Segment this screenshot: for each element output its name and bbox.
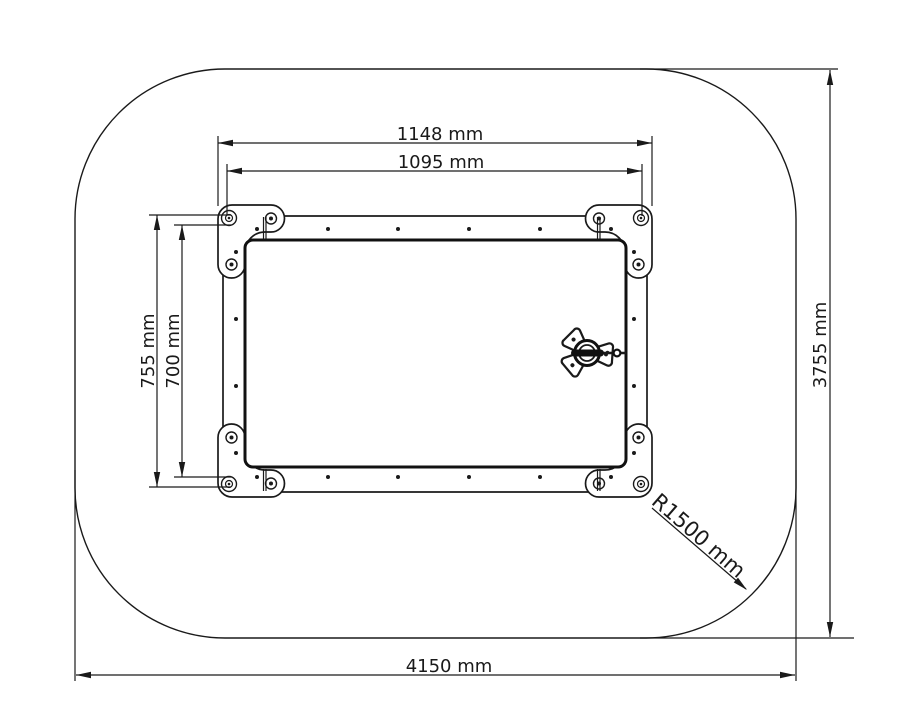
arrowhead-right <box>627 168 642 174</box>
arrowhead-bottom <box>154 472 160 487</box>
corner-bolt-center <box>640 483 643 486</box>
corner-bolt-center <box>228 483 231 486</box>
arrowhead-left <box>227 168 242 174</box>
dim-label-zone-length: 4150 mm <box>406 656 493 677</box>
arrowhead-bottom <box>827 622 833 637</box>
arrowhead-left <box>76 672 91 678</box>
dim-label-zone-height: 3755 mm <box>810 302 831 389</box>
arrowhead-bottom <box>179 462 185 477</box>
dim-label-inner-width: 1095 mm <box>398 152 485 173</box>
dimension-inner-width: 1095 mm <box>227 152 642 216</box>
dimension-corner-radius: R1500 mm <box>647 489 750 593</box>
dim-label-frame-height: 755 mm <box>138 313 159 388</box>
latch-arm-ball <box>614 350 621 357</box>
tab-bolt-center <box>637 436 641 440</box>
dimension-zone-height: 3755 mm <box>810 70 833 637</box>
dimension-zone-length: 4150 mm <box>76 656 795 678</box>
tab-bolt-center <box>230 436 234 440</box>
arrowhead-top <box>179 225 185 240</box>
arrowhead-right <box>637 140 652 146</box>
arrowhead-top <box>827 70 833 85</box>
tab-bolt-center <box>230 263 234 267</box>
arrowhead-right <box>780 672 795 678</box>
arrowhead-top <box>154 215 160 230</box>
arrowhead-left <box>218 140 233 146</box>
tab-bolt-center <box>269 217 273 221</box>
corner-bolt-center <box>228 217 231 220</box>
frame-mat-panel <box>245 240 626 467</box>
dimension-frame-height: 755 mm <box>138 215 231 487</box>
tab-bolt-center <box>269 482 273 486</box>
dim-label-inner-height: 700 mm <box>163 313 184 388</box>
dim-label-corner-radius: R1500 mm <box>647 489 750 583</box>
drawing-canvas: 1148 mm 1095 mm 755 mm 700 mm 3755 mm <box>0 0 904 721</box>
latch-link-dot <box>606 351 610 355</box>
latch-slot <box>571 350 604 357</box>
tab-bolt-center <box>637 263 641 267</box>
dim-label-frame-width: 1148 mm <box>397 124 484 145</box>
corner-bolt-center <box>640 217 643 220</box>
technical-drawing: 1148 mm 1095 mm 755 mm 700 mm 3755 mm <box>0 0 904 721</box>
